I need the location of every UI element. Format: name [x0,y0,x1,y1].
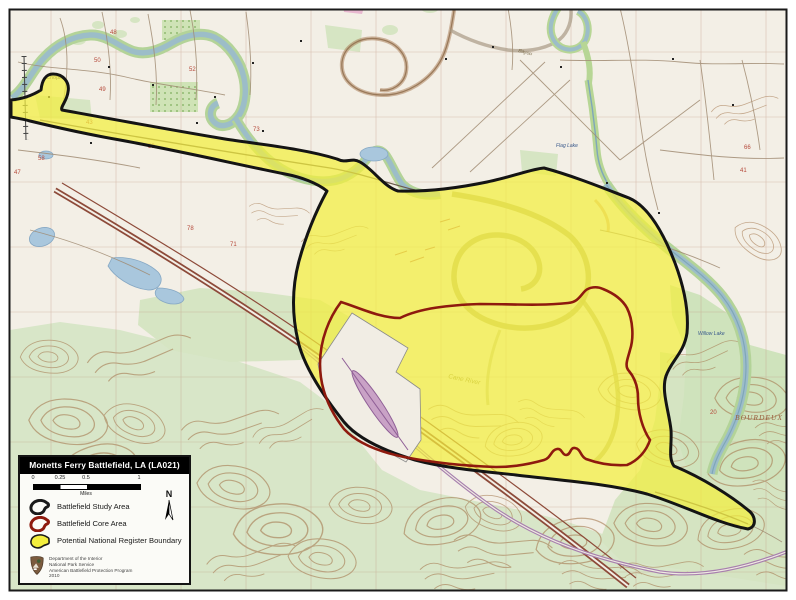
scale-tick: 0 [31,475,34,481]
svg-text:58: 58 [38,156,45,162]
north-arrow: N [162,490,176,526]
svg-text:49: 49 [99,87,106,93]
svg-text:50: 50 [94,58,101,64]
credit-text: Department of the Interior National Park… [49,556,132,579]
label-bourdeux: BOURDEUX [735,413,783,422]
label-willow-lake: Willow Lake [698,331,725,337]
map-title: Monetts Ferry Battlefield, LA (LA021) [20,457,189,474]
svg-text:71: 71 [230,242,237,248]
scale-tick: 0.25 [55,475,66,481]
svg-text:20: 20 [710,410,717,416]
svg-text:48: 48 [110,30,117,36]
credit-block: Department of the Interior National Park… [29,556,132,579]
svg-text:47: 47 [14,170,21,176]
map-sheet: Chopin Bayou Cane River Flag Lake Willow… [0,0,796,600]
label-flag-lake: Flag Lake [556,143,578,149]
scale-tick: 0.5 [82,475,90,481]
svg-text:78: 78 [187,226,194,232]
svg-text:41: 41 [740,168,747,174]
study-area-swatch-icon [28,499,52,515]
legend-item-register-boundary: Potential National Register Boundary [28,532,189,549]
legend-box: Monetts Ferry Battlefield, LA (LA021) 0 … [18,455,191,585]
svg-text:73: 73 [253,127,260,133]
svg-text:52: 52 [189,67,196,73]
nps-arrowhead-icon [29,556,45,576]
north-arrow-icon [163,499,175,521]
scale-unit-label: Miles [33,491,139,497]
svg-text:66: 66 [744,145,751,151]
scale-bar-graphic [33,484,141,490]
scale-tick: 1 [137,475,140,481]
core-area-swatch-icon [28,516,52,532]
register-boundary-swatch-icon [28,533,52,549]
